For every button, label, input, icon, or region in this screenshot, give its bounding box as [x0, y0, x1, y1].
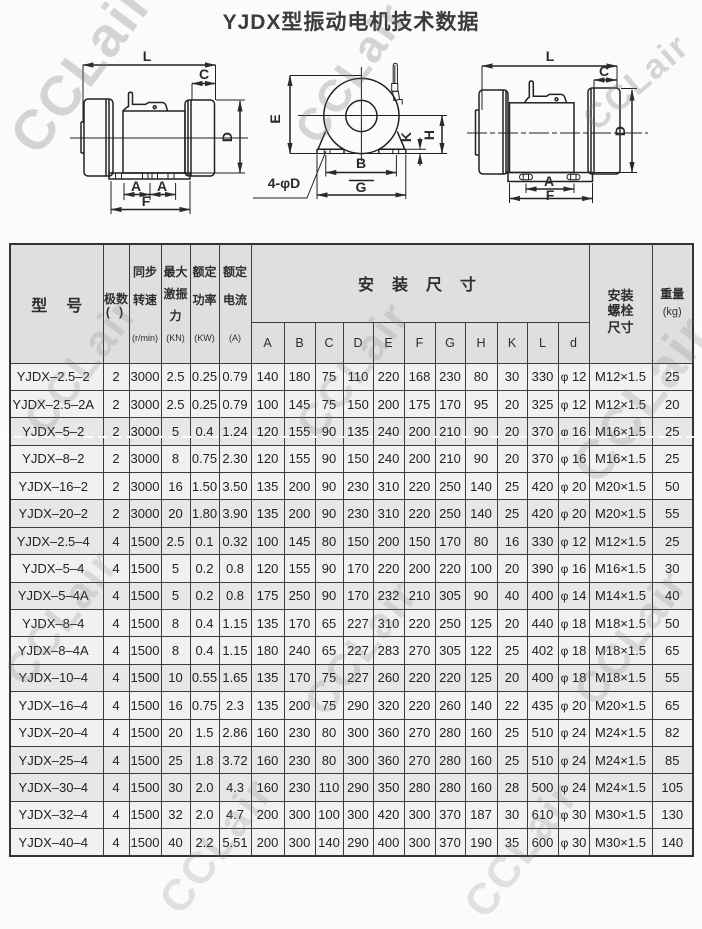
svg-text:4-φD: 4-φD	[268, 175, 301, 191]
svg-text:D: D	[219, 132, 235, 142]
svg-text:F: F	[142, 193, 151, 209]
svg-text:E: E	[267, 114, 283, 123]
svg-text:L: L	[143, 48, 152, 64]
svg-text:A: A	[131, 178, 141, 194]
svg-text:D: D	[612, 126, 628, 136]
svg-text:B: B	[356, 155, 366, 171]
svg-text:A: A	[157, 178, 167, 194]
svg-text:L: L	[546, 48, 555, 64]
svg-text:G: G	[356, 179, 367, 195]
svg-text:F: F	[546, 187, 555, 203]
svg-text:H: H	[421, 130, 437, 140]
svg-text:K: K	[398, 132, 414, 142]
svg-text:C: C	[599, 63, 609, 79]
svg-text:C: C	[199, 66, 209, 82]
